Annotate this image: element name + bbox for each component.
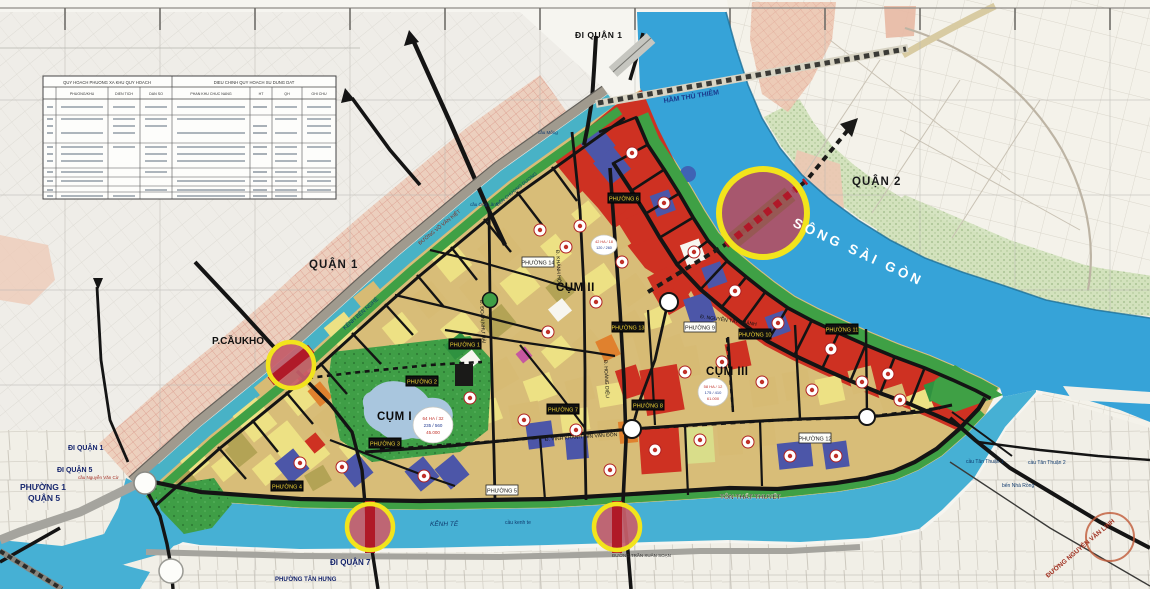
svg-text:PHƯỜNG 4: PHƯỜNG 4 [272, 484, 302, 491]
svg-text:cầu Mống: cầu Mống [538, 130, 558, 135]
svg-text:45.000: 45.000 [426, 430, 440, 435]
svg-text:ĐI QUẬN 5: ĐI QUẬN 5 [57, 465, 93, 474]
svg-text:PHƯỜNG 10: PHƯỜNG 10 [739, 332, 772, 339]
svg-text:PHƯỜNG 1: PHƯỜNG 1 [20, 481, 66, 492]
svg-text:QUẬN 2: QUẬN 2 [852, 175, 901, 188]
svg-text:P.CẦUKHO: P.CẦUKHO [212, 334, 264, 347]
svg-text:CỤM III: CỤM III [706, 366, 748, 378]
svg-text:DAN SO: DAN SO [149, 92, 163, 96]
svg-text:64 HA / 32: 64 HA / 32 [422, 416, 444, 421]
svg-text:ĐƯỜNG TRẦN XUÂN SOẠN: ĐƯỜNG TRẦN XUÂN SOẠN [612, 552, 671, 558]
svg-text:PHƯỜNG 8: PHƯỜNG 8 [633, 403, 663, 410]
svg-text:PHƯỜNG 1: PHƯỜNG 1 [450, 342, 480, 349]
svg-text:QH: QH [284, 92, 290, 96]
svg-text:QUẬN 5: QUẬN 5 [28, 492, 60, 503]
svg-text:QUY HOACH PHUONG XA KHU QUY HO: QUY HOACH PHUONG XA KHU QUY HOACH [63, 80, 151, 85]
svg-text:PHƯỜNG 13: PHƯỜNG 13 [612, 325, 645, 332]
svg-text:ĐI QUẬN 7: ĐI QUẬN 7 [330, 558, 371, 567]
svg-text:PHƯỜNG 11: PHƯỜNG 11 [826, 327, 859, 334]
svg-text:KÊNH TẺ: KÊNH TẺ [430, 519, 459, 528]
svg-text:QUẬN 1: QUẬN 1 [309, 258, 358, 271]
svg-text:DIEU CHINH QUY HOACH SU DUNG D: DIEU CHINH QUY HOACH SU DUNG DAT [214, 80, 295, 85]
svg-text:PHAN KHU CHUC NANG: PHAN KHU CHUC NANG [190, 92, 232, 96]
svg-text:cầu Nguyễn Văn Cừ: cầu Nguyễn Văn Cừ [78, 474, 119, 480]
svg-text:cầu Tân Thuận 2: cầu Tân Thuận 2 [1028, 460, 1066, 466]
svg-text:bến Nhà Rồng: bến Nhà Rồng [1002, 483, 1034, 489]
svg-text:PHƯỜNG 6: PHƯỜNG 6 [609, 196, 639, 203]
svg-text:PHƯỜNG 14: PHƯỜNG 14 [522, 260, 555, 267]
svg-text:PHƯỜNG 2: PHƯỜNG 2 [407, 379, 437, 386]
svg-text:PHƯỜNG 7: PHƯỜNG 7 [548, 407, 578, 414]
svg-text:ĐI QUẬN 1: ĐI QUẬN 1 [68, 443, 104, 452]
svg-text:cầu Ông Lãnh: cầu Ông Lãnh [470, 201, 499, 207]
svg-text:PHƯỜNG 12: PHƯỜNG 12 [799, 436, 832, 443]
svg-text:HT: HT [259, 92, 265, 96]
svg-text:PHƯỜNG 9: PHƯỜNG 9 [685, 325, 715, 332]
svg-text:235 / 560: 235 / 560 [424, 423, 443, 428]
svg-text:61.000: 61.000 [707, 396, 720, 401]
svg-text:PHƯỜNG 3: PHƯỜNG 3 [370, 441, 400, 448]
svg-text:GHI CHU: GHI CHU [311, 92, 327, 96]
svg-text:DIEN TICH: DIEN TICH [115, 92, 133, 96]
svg-text:PHƯỜNG TÂN HƯNG: PHƯỜNG TÂN HƯNG [275, 575, 337, 583]
svg-text:PHƯỜNG 5: PHƯỜNG 5 [487, 488, 517, 495]
svg-text:PHUONG/KHU: PHUONG/KHU [70, 92, 95, 96]
svg-text:CỤM I: CỤM I [377, 411, 412, 423]
svg-text:cầu Tân Thuận 1: cầu Tân Thuận 1 [966, 459, 1004, 465]
svg-text:58 HA / 12: 58 HA / 12 [704, 384, 723, 389]
svg-text:ĐI QUẬN 1: ĐI QUẬN 1 [575, 29, 622, 40]
svg-text:120 / 260: 120 / 260 [596, 246, 612, 250]
svg-text:175 / 410: 175 / 410 [705, 390, 722, 395]
svg-text:cầu kenh te: cầu kenh te [505, 520, 531, 526]
svg-text:42 HA / 18: 42 HA / 18 [595, 240, 613, 244]
